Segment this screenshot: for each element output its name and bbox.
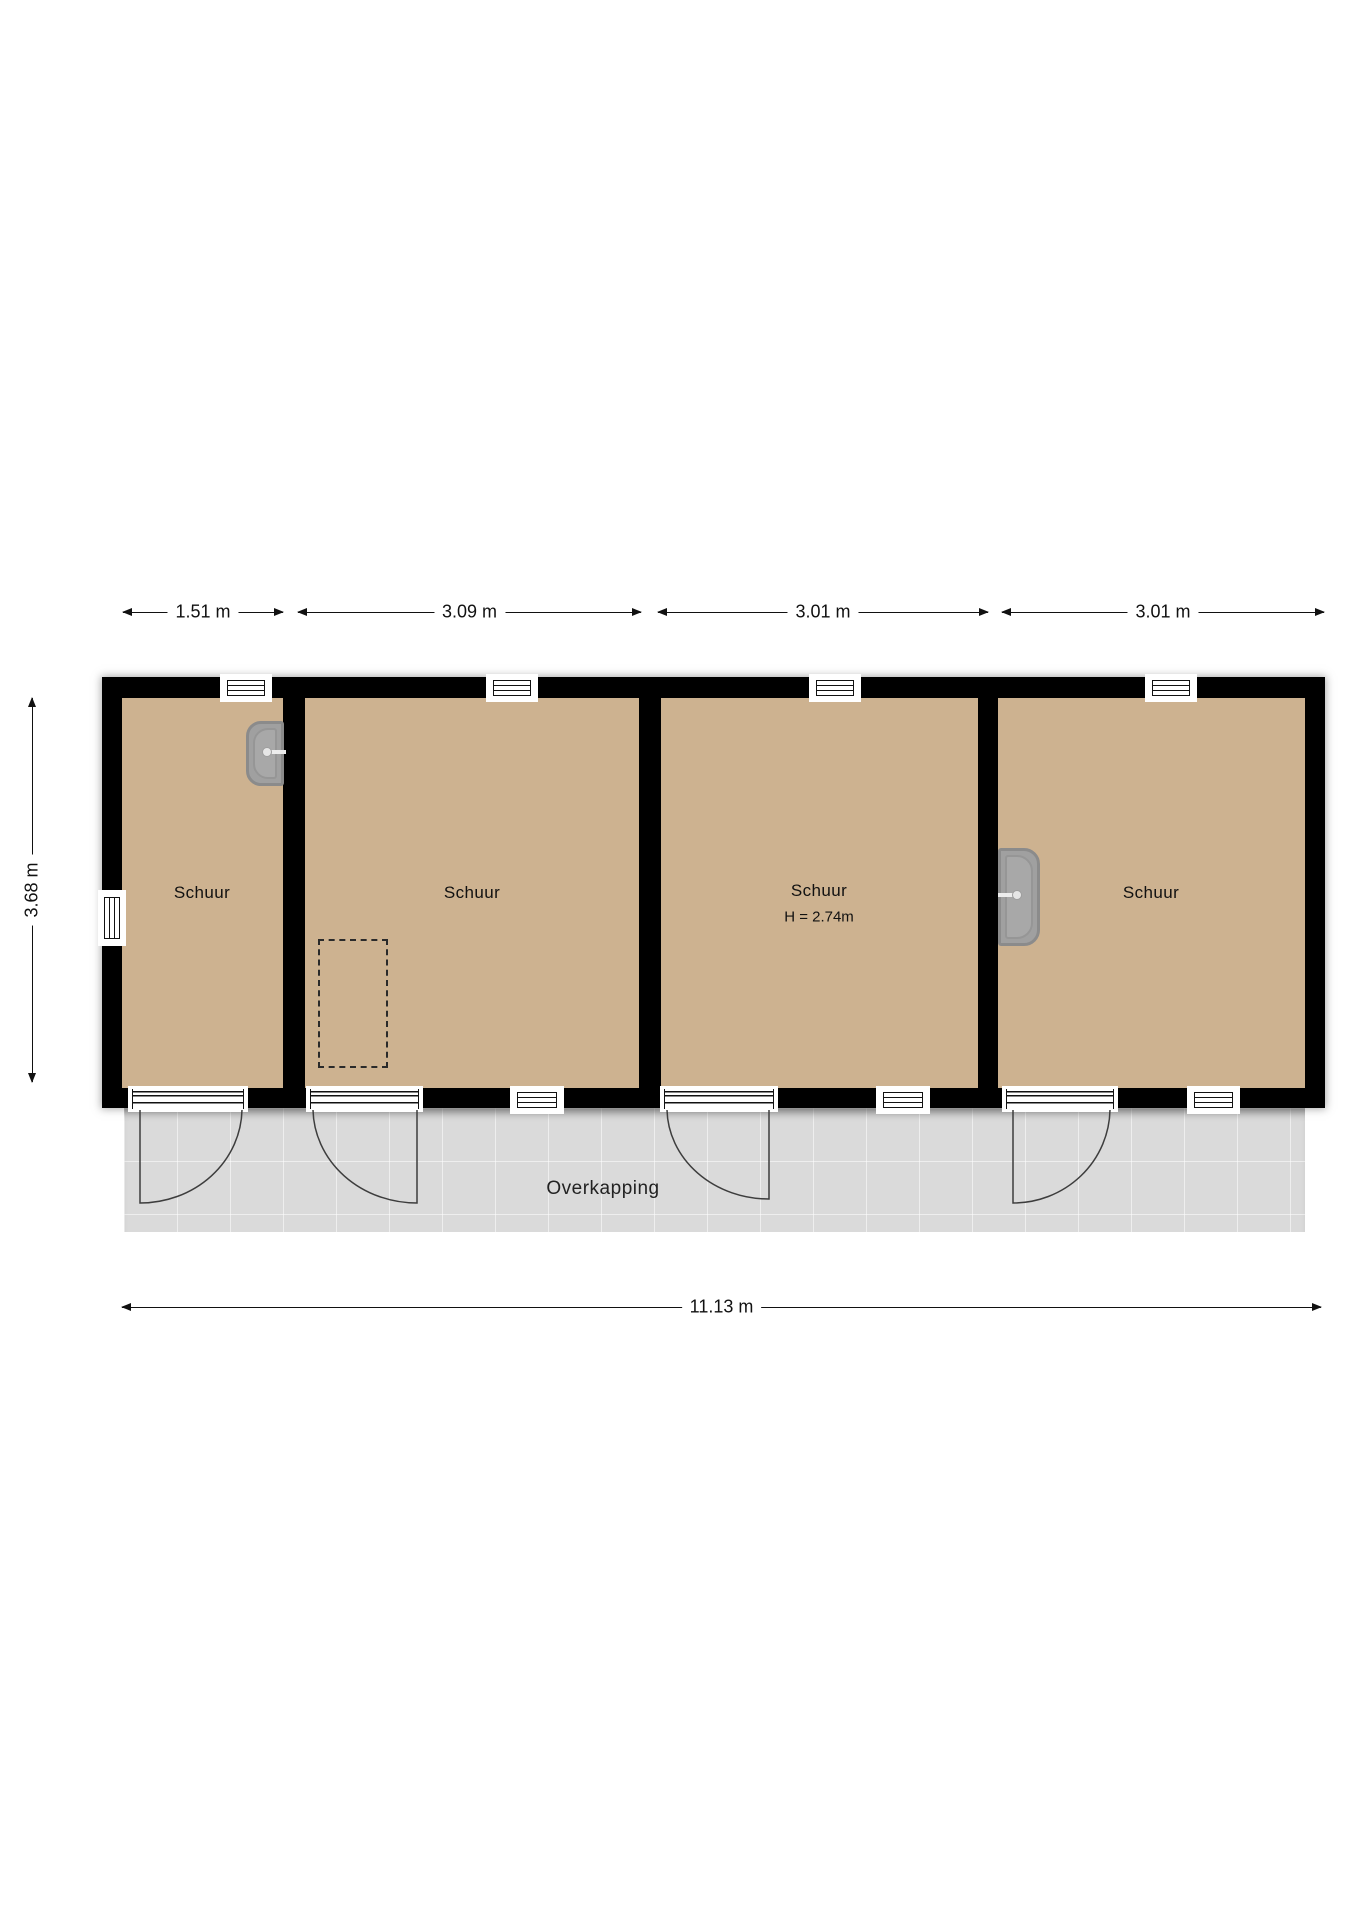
arrow-left-icon — [121, 1303, 131, 1311]
valve-icon — [268, 750, 286, 754]
door-frame-icon — [664, 1089, 774, 1109]
dimension-top-2-label: 3.09 m — [434, 602, 505, 623]
window-glass-icon — [517, 1092, 557, 1108]
door-frame-icon — [1006, 1089, 1114, 1109]
dimension-top-2: 3.09 m — [298, 612, 641, 613]
arrow-right-icon — [274, 608, 284, 616]
room-3-height-note: H = 2.74m — [784, 909, 854, 926]
window-top-1 — [220, 674, 272, 702]
arrow-up-icon — [28, 697, 36, 707]
window-glass-icon — [493, 680, 531, 696]
window-top-2 — [486, 674, 538, 702]
window-glass-icon — [1152, 680, 1190, 696]
dashed-fixture-outline — [318, 939, 388, 1068]
window-top-4 — [1145, 674, 1197, 702]
room-4-label: Schuur — [1123, 883, 1179, 903]
dimension-top-4: 3.01 m — [1002, 612, 1324, 613]
door-opening-3 — [660, 1086, 778, 1112]
door-frame-icon — [310, 1089, 419, 1109]
dimension-left: 3.68 m — [32, 698, 33, 1082]
window-bottom-3 — [1187, 1086, 1240, 1114]
dimension-bottom: 11.13 m — [122, 1307, 1321, 1308]
dimension-top-1: 1.51 m — [123, 612, 283, 613]
dimension-top-3-label: 3.01 m — [787, 602, 858, 623]
door-opening-2 — [306, 1086, 423, 1112]
room-2-label: Schuur — [444, 883, 500, 903]
dimension-left-label: 3.68 m — [22, 854, 43, 925]
window-glass-icon — [883, 1092, 923, 1108]
dimension-top-4-label: 3.01 m — [1127, 602, 1198, 623]
arrow-right-icon — [1312, 1303, 1322, 1311]
room-1-label: Schuur — [174, 883, 230, 903]
window-top-3 — [809, 674, 861, 702]
dimension-top-1-label: 1.51 m — [167, 602, 238, 623]
door-opening-1 — [128, 1086, 248, 1112]
valve-knob-icon — [1012, 890, 1022, 900]
door-opening-4 — [1002, 1086, 1118, 1112]
dimension-bottom-label: 11.13 m — [682, 1297, 762, 1318]
arrow-right-icon — [1315, 608, 1325, 616]
window-glass-icon — [1194, 1092, 1233, 1108]
window-glass-icon — [227, 680, 265, 696]
window-glass-icon — [816, 680, 854, 696]
arrow-left-icon — [122, 608, 132, 616]
room-3-label: Schuur — [791, 881, 847, 901]
canopy-area — [124, 1108, 1305, 1232]
floorplan-canvas: 1.51 m 3.09 m 3.01 m 3.01 m 3.68 m 11.13… — [0, 0, 1358, 1920]
arrow-left-icon — [297, 608, 307, 616]
canopy-label: Overkapping — [546, 1178, 659, 1200]
door-frame-icon — [132, 1089, 244, 1109]
dimension-top-3: 3.01 m — [658, 612, 988, 613]
window-bottom-2 — [876, 1086, 930, 1114]
arrow-left-icon — [657, 608, 667, 616]
window-glass-icon — [104, 897, 120, 939]
valve-knob-icon — [262, 747, 272, 757]
arrow-right-icon — [632, 608, 642, 616]
window-left-1 — [98, 890, 126, 946]
arrow-down-icon — [28, 1073, 36, 1083]
valve-icon — [998, 893, 1016, 897]
arrow-right-icon — [979, 608, 989, 616]
window-bottom-1 — [510, 1086, 564, 1114]
arrow-left-icon — [1001, 608, 1011, 616]
